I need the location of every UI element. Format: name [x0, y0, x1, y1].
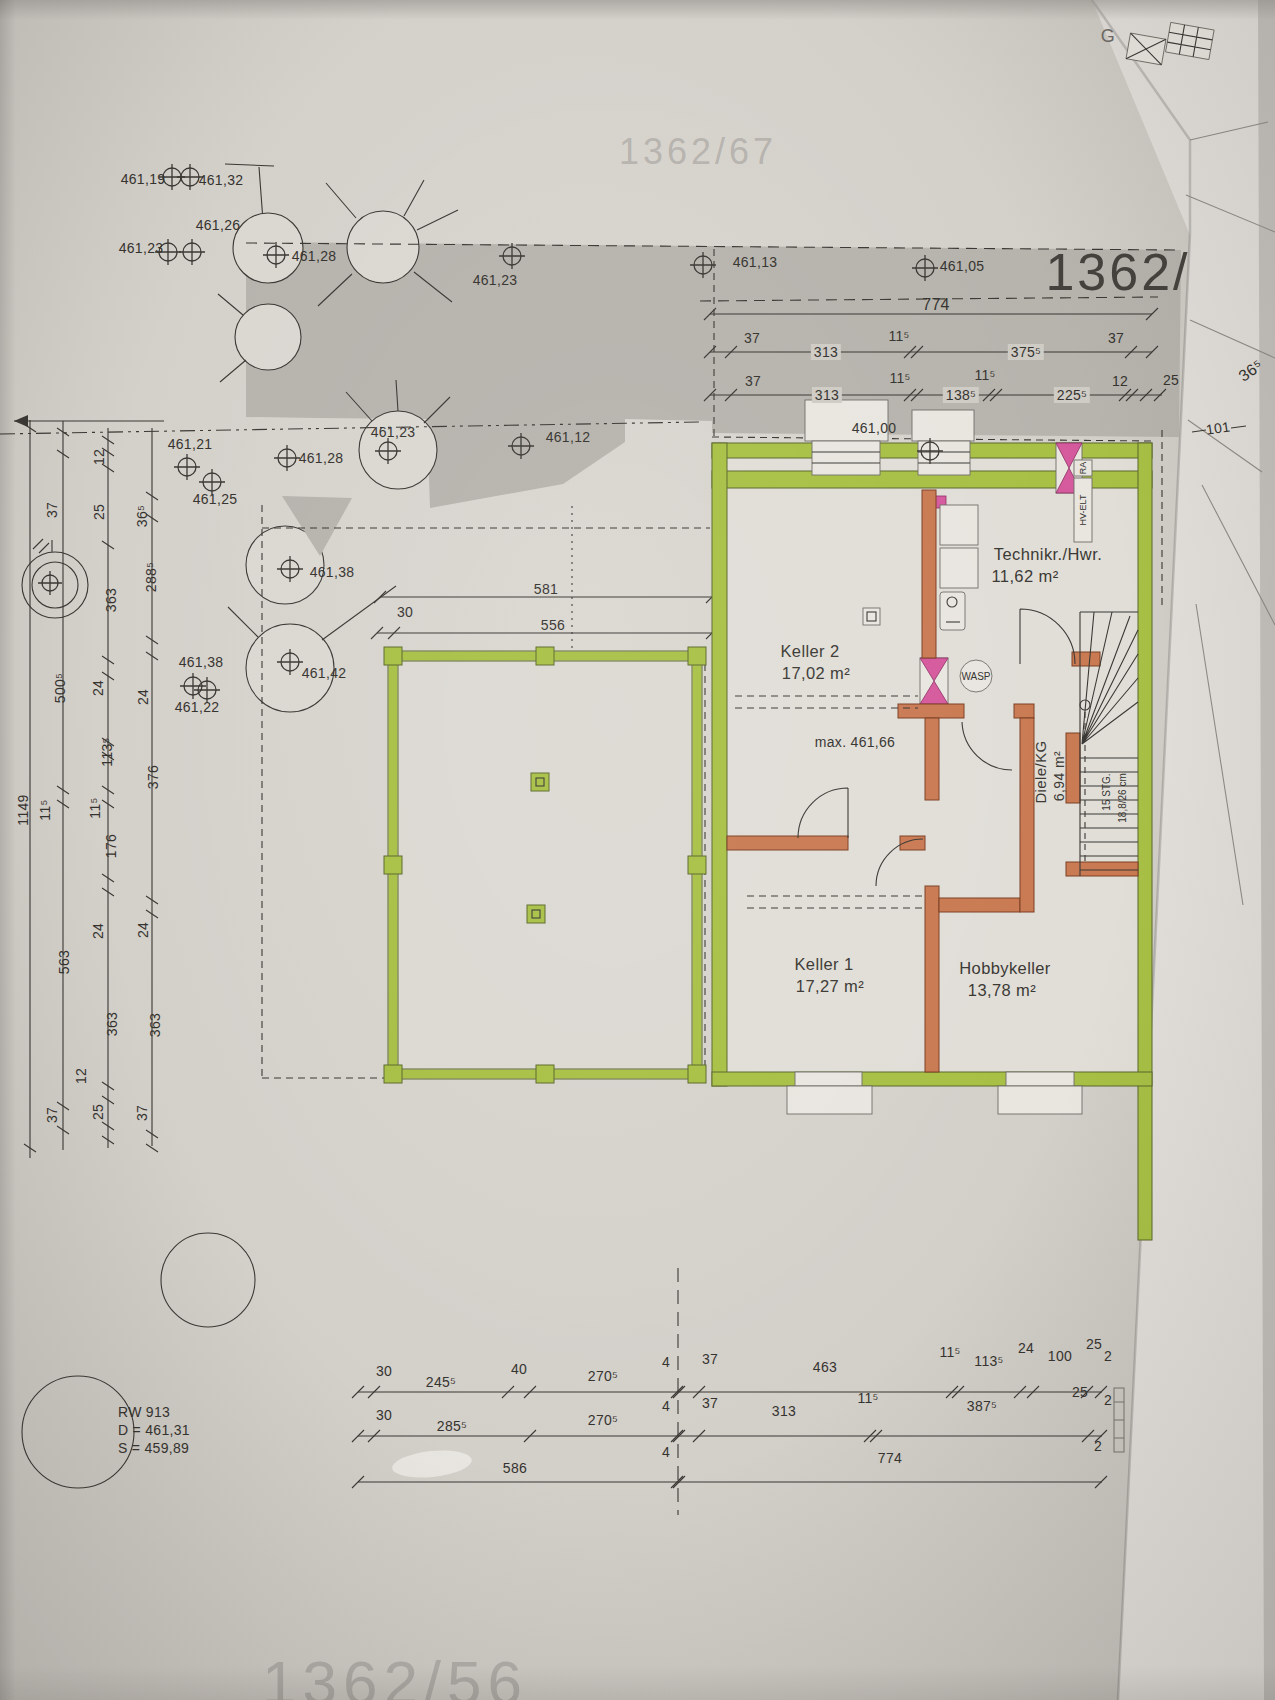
- stair-wall: [1066, 862, 1138, 876]
- window: [812, 441, 880, 475]
- dim-label: 24: [135, 689, 151, 705]
- dim-label: 4: [662, 1354, 670, 1370]
- dim-label: 245⁵: [426, 1374, 456, 1390]
- elevation-label: 461,23: [371, 424, 416, 440]
- room-name: Diele/KG: [1032, 740, 1049, 803]
- dim-label: 4: [662, 1398, 670, 1414]
- manhole-invert-level: S = 459,89: [118, 1440, 189, 1456]
- room-name: Technikr./Hwr.: [994, 545, 1102, 564]
- elevation-label: 461,26: [196, 217, 241, 233]
- ghost-parcel-bottom: 1362/56: [262, 1647, 528, 1700]
- dim-label: 24: [90, 680, 106, 696]
- dim-label: 11⁵: [87, 797, 103, 818]
- dim-label: 225⁵: [1054, 387, 1090, 403]
- dim-label: 2: [1104, 1392, 1112, 1408]
- parcel-number: 1362/: [1045, 242, 1190, 302]
- dim-label: 2: [1094, 1438, 1102, 1454]
- elevation-label: 461,22: [175, 699, 220, 715]
- dim-label: 30: [376, 1363, 392, 1379]
- light-well: [787, 1086, 872, 1114]
- dim-label: 11⁵: [888, 328, 909, 344]
- dim-label: 463: [813, 1359, 837, 1375]
- elevation-label: 461,23: [473, 272, 518, 288]
- elevation-label: 461,19: [121, 171, 166, 187]
- interior-wall: [939, 898, 1020, 912]
- dim-label: 36⁵: [134, 505, 150, 527]
- elevation-label: 461,38: [310, 564, 355, 580]
- dim-label: 25: [91, 504, 107, 520]
- dim-label: 11⁵: [889, 370, 910, 386]
- dim-label: 37: [44, 502, 60, 518]
- house-basement: [712, 400, 1152, 1240]
- dim-label: 774: [922, 296, 950, 314]
- elevation-label: 461,13: [733, 254, 778, 270]
- elevation-label: 461,32: [199, 172, 244, 188]
- elevation-label: 461,12: [546, 429, 591, 445]
- dim-label: 37: [702, 1395, 718, 1411]
- max-level-label: max. 461,66: [815, 734, 895, 750]
- corner-letter: G: [1101, 26, 1115, 47]
- outer-wall-right: [1138, 443, 1152, 1240]
- dim-label: 363: [103, 588, 119, 612]
- elevation-label: 461,38: [179, 654, 224, 670]
- room-area: 17,02 m²: [782, 664, 850, 683]
- dim-label: 2: [1104, 1348, 1112, 1364]
- checkbox-icon: [1126, 33, 1166, 65]
- dim-label: 313: [811, 344, 841, 360]
- dim-label: 270⁵: [588, 1412, 618, 1428]
- ghost-parcel-top: 1362/67: [619, 131, 777, 173]
- dim-label: 285⁵: [437, 1418, 467, 1434]
- elevation-label: 461,21: [168, 436, 213, 452]
- window: [1006, 1072, 1074, 1086]
- dim-label: 100: [1048, 1348, 1072, 1364]
- dim-label: 313: [812, 387, 842, 403]
- dim-label: 37: [134, 1105, 150, 1121]
- dim-label: 113⁵: [974, 1353, 1003, 1369]
- elevation-label: 461,28: [299, 450, 344, 466]
- room-name: Keller 2: [780, 642, 839, 661]
- wasp-label: WASP: [961, 671, 990, 682]
- dim-label: 37: [745, 373, 761, 389]
- dim-label: 270⁵: [588, 1368, 618, 1384]
- dim-label: 11⁵: [974, 367, 995, 383]
- dim-label: 25: [1086, 1336, 1102, 1352]
- paper-tear: [391, 1447, 473, 1481]
- light-well: [912, 410, 974, 441]
- tree-icon: [359, 411, 437, 489]
- dim-label: 113⁵: [99, 737, 115, 766]
- dim-label: 40: [511, 1361, 527, 1377]
- elevation-label: 461,00: [852, 420, 897, 436]
- dim-label: 376: [145, 765, 161, 789]
- dim-label: 24: [90, 923, 106, 939]
- dim-label: 774: [878, 1450, 902, 1466]
- dim-label: 313: [772, 1403, 796, 1419]
- dim-label: 11⁵: [857, 1390, 878, 1406]
- window: [918, 441, 970, 475]
- interior-wall: [1014, 704, 1034, 718]
- room-name: Keller 1: [794, 955, 853, 974]
- dim-label: 500⁵: [52, 673, 68, 703]
- dim-label: 24: [1018, 1340, 1034, 1356]
- elevation-label: 461,25: [193, 491, 238, 507]
- dim-label: 101: [1205, 418, 1231, 437]
- dim-label: 363: [104, 1012, 120, 1036]
- interior-wall: [727, 836, 848, 850]
- dim-label: 581: [534, 581, 558, 597]
- dim-label: 387⁵: [967, 1398, 997, 1414]
- ra-label: RA: [1078, 462, 1088, 475]
- dim-label: 586: [503, 1460, 527, 1476]
- outer-wall-left: [712, 443, 727, 1086]
- room-area: 17,27 m²: [796, 977, 864, 996]
- elevation-label: 461,23: [119, 240, 164, 256]
- dim-label: 288⁵: [143, 562, 159, 592]
- dim-label: 363: [147, 1013, 163, 1037]
- dim-label: 12: [91, 449, 107, 465]
- dim-label: 30: [376, 1407, 392, 1423]
- tree-icon: [347, 211, 419, 283]
- elevation-label: 461,05: [940, 258, 985, 274]
- dim-label: 25: [1072, 1384, 1088, 1400]
- dim-label: 4: [662, 1444, 670, 1460]
- room-name: Hobbykeller: [959, 959, 1051, 978]
- interior-wall: [925, 718, 939, 800]
- dim-label: 24: [135, 922, 151, 938]
- elevation-label: 461,42: [302, 665, 347, 681]
- dim-label: 176: [103, 834, 119, 858]
- room-area: 11,62 m²: [991, 567, 1058, 586]
- dim-label: 30: [397, 604, 413, 620]
- dim-label: 37: [702, 1351, 718, 1367]
- window: [795, 1072, 862, 1086]
- dim-label: 12: [73, 1068, 89, 1084]
- dim-label: 11⁵: [37, 799, 53, 820]
- manhole-cover-level: D = 461,31: [118, 1422, 190, 1438]
- interior-wall: [1072, 652, 1100, 666]
- terrace: [384, 647, 706, 1083]
- dim-label: 25: [90, 1104, 106, 1120]
- room-area: 13,78 m²: [968, 981, 1036, 1000]
- elevation-label: 461,28: [292, 248, 337, 264]
- interior-wall: [898, 704, 964, 718]
- dim-label: 37: [44, 1107, 60, 1123]
- dim-label: 37: [1108, 330, 1124, 346]
- dim-label: 556: [541, 617, 565, 633]
- interior-wall: [922, 490, 936, 658]
- stair-label: 15 STG.: [1101, 773, 1112, 810]
- dim-label: 11⁵: [939, 1344, 960, 1360]
- manhole-circle: [161, 1233, 255, 1327]
- dim-label: 12: [1112, 373, 1128, 389]
- stair-label: 18,8/26 cm: [1117, 773, 1128, 822]
- dim-label: 1149: [15, 794, 31, 825]
- outer-wall-bottom: [712, 1072, 1152, 1086]
- room-area: 6,94 m²: [1051, 751, 1067, 801]
- interior-wall: [925, 886, 939, 1072]
- dim-label: 37: [744, 330, 760, 346]
- hv-elt-label: HV-ELT: [1078, 495, 1088, 526]
- dim-label: 25: [1163, 372, 1179, 388]
- manhole-id: RW 913: [118, 1404, 170, 1420]
- light-well: [998, 1086, 1082, 1114]
- survey-shaft: [22, 539, 88, 618]
- shaft-block: [920, 658, 948, 704]
- floor-plan-photo: .ln{stroke:#3b3935;stroke-width:1.1;fill…: [0, 0, 1275, 1700]
- tree-icon: [235, 304, 301, 370]
- dim-label: 563: [56, 950, 72, 974]
- dim-label: 138⁵: [943, 387, 979, 403]
- dim-label: 375⁵: [1008, 344, 1044, 360]
- stair-wall: [1066, 733, 1080, 803]
